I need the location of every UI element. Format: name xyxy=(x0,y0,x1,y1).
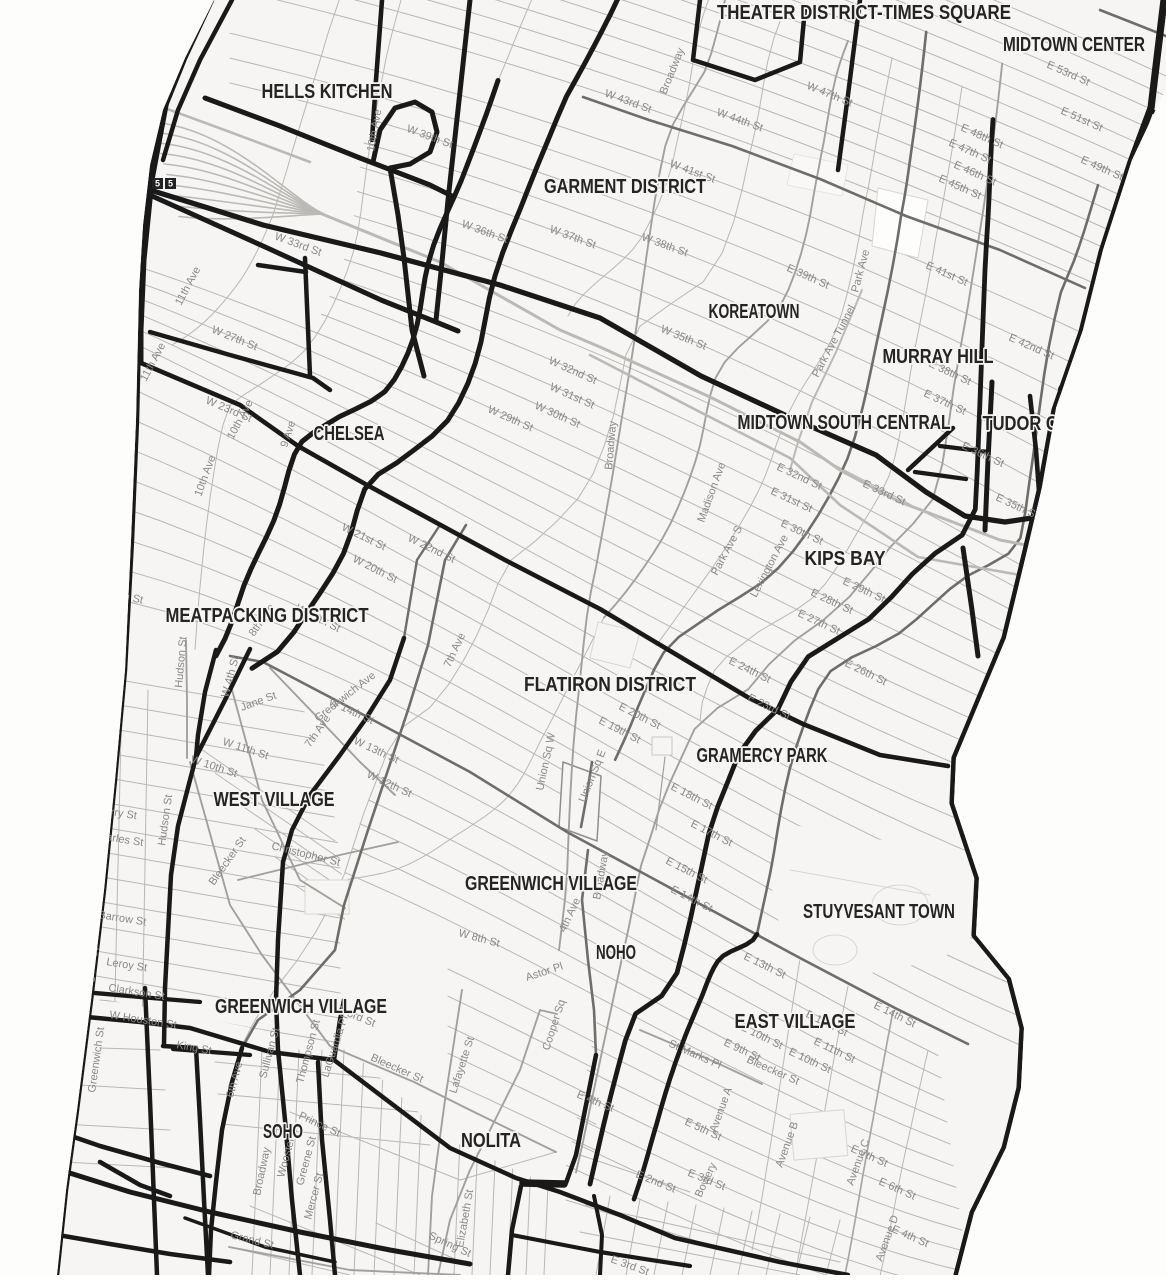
svg-text:STUYVESANT TOWN: STUYVESANT TOWN xyxy=(803,901,955,923)
svg-text:KIPS BAY: KIPS BAY xyxy=(805,548,887,570)
svg-text:MEATPACKING DISTRICT: MEATPACKING DISTRICT xyxy=(166,605,369,627)
svg-text:WEST VILLAGE: WEST VILLAGE xyxy=(214,789,335,811)
svg-text:GREENWICH VILLAGE: GREENWICH VILLAGE xyxy=(215,996,387,1018)
svg-text:MURRAY HILL: MURRAY HILL xyxy=(883,346,994,368)
svg-text:MIDTOWN SOUTH CENTRAL: MIDTOWN SOUTH CENTRAL xyxy=(738,412,951,434)
svg-text:EAST VILLAGE: EAST VILLAGE xyxy=(735,1011,856,1033)
svg-text:GRAMERCY PARK: GRAMERCY PARK xyxy=(697,745,828,767)
svg-text:CHELSEA: CHELSEA xyxy=(314,423,385,445)
svg-text:NOLITA: NOLITA xyxy=(461,1130,521,1152)
svg-text:THEATER DISTRICT-TIMES SQUARE: THEATER DISTRICT-TIMES SQUARE xyxy=(717,2,1011,24)
svg-text:SOHO: SOHO xyxy=(263,1121,303,1143)
svg-text:HELLS KITCHEN: HELLS KITCHEN xyxy=(262,81,393,103)
svg-text:NOHO: NOHO xyxy=(596,942,636,964)
svg-text:MIDTOWN CENTER: MIDTOWN CENTER xyxy=(1003,34,1145,56)
svg-text:KOREATOWN: KOREATOWN xyxy=(709,301,800,323)
svg-text:5: 5 xyxy=(168,179,173,189)
svg-text:FLATIRON DISTRICT: FLATIRON DISTRICT xyxy=(524,674,696,696)
svg-text:GREENWICH VILLAGE: GREENWICH VILLAGE xyxy=(465,873,637,895)
svg-text:5: 5 xyxy=(155,179,160,189)
svg-text:GARMENT DISTRICT: GARMENT DISTRICT xyxy=(544,176,706,198)
